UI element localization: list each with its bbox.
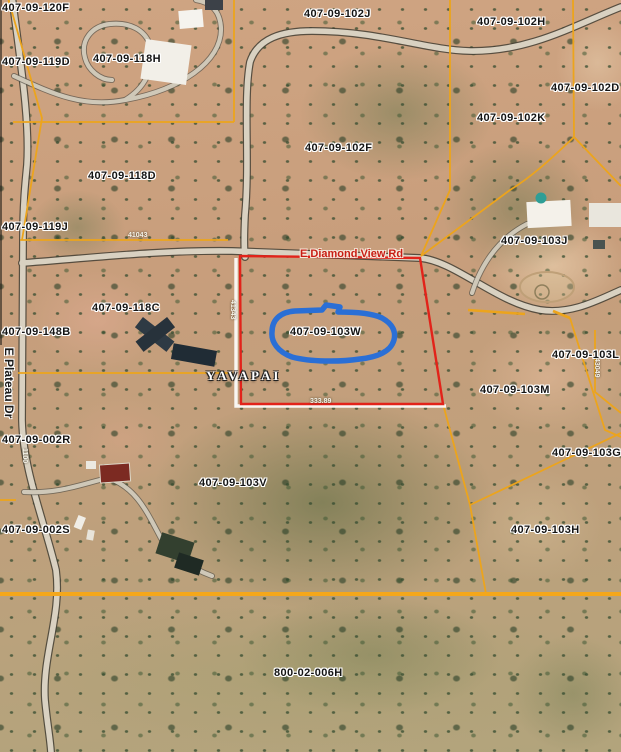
parcel-label: 407-09-103H [511, 524, 580, 536]
building-118c-barn [171, 343, 217, 366]
dimension-label: 1100 [21, 448, 28, 463]
parcel-label: 407-09-118D [88, 170, 156, 182]
pool-103j [536, 193, 547, 204]
parcel-label: 407-09-002S [2, 524, 70, 536]
parcel-label: 407-09-119J [2, 221, 68, 233]
parcel-label: 407-09-102D [551, 82, 620, 94]
building-118h-shed [178, 9, 203, 29]
building-103j-house [526, 200, 571, 228]
road-label-e-diamond-view-rd: E Diamond View Rd [300, 248, 403, 260]
building-002s-barn [174, 552, 204, 575]
dimension-label: 43049 [593, 358, 600, 377]
dimension-label: 41043 [128, 232, 147, 239]
dimension-label: 333.89 [310, 398, 331, 405]
parcel-label: 407-09-102H [477, 16, 546, 28]
parcel-label: 407-09-103G [552, 447, 621, 459]
parcel-label-highlighted: 407-09-103W [290, 326, 361, 338]
building-002r-shed [86, 461, 96, 469]
dimension-label: 41343 [229, 300, 236, 319]
building-002r-house [99, 463, 130, 483]
parcel-label: 407-09-102J [304, 8, 371, 20]
vehicle-1 [74, 515, 86, 530]
parcel-label: 800-02-006H [274, 667, 343, 679]
building-103j-shed [593, 240, 605, 249]
building-118h-garage [205, 0, 223, 10]
jurisdiction-label-yavapai: YAVAPAI [206, 368, 281, 384]
parcel-label: 407-09-118H [93, 53, 161, 65]
parcel-label: 407-09-119D [2, 56, 70, 68]
building-103j-barn [589, 203, 621, 227]
parcel-label: 407-09-102F [305, 142, 372, 154]
buildings [74, 0, 621, 576]
parcel-label: 407-09-103M [480, 384, 550, 396]
vehicle-2 [86, 530, 95, 541]
road-label-e-plateau-dr: E Plateau Dr [2, 323, 16, 443]
parcel-map-canvas[interactable]: 407-09-120F 407-09-119D 407-09-118H 407-… [0, 0, 621, 752]
parcel-label: 407-09-103L [552, 349, 619, 361]
parcel-label: 407-09-103J [501, 235, 568, 247]
parcel-label: 407-09-118C [92, 302, 160, 314]
parcel-label: 407-09-103V [199, 477, 267, 489]
parcel-label: 407-09-102K [477, 112, 546, 124]
building-118c-house [135, 317, 175, 352]
parcel-label: 407-09-120F [2, 2, 69, 14]
